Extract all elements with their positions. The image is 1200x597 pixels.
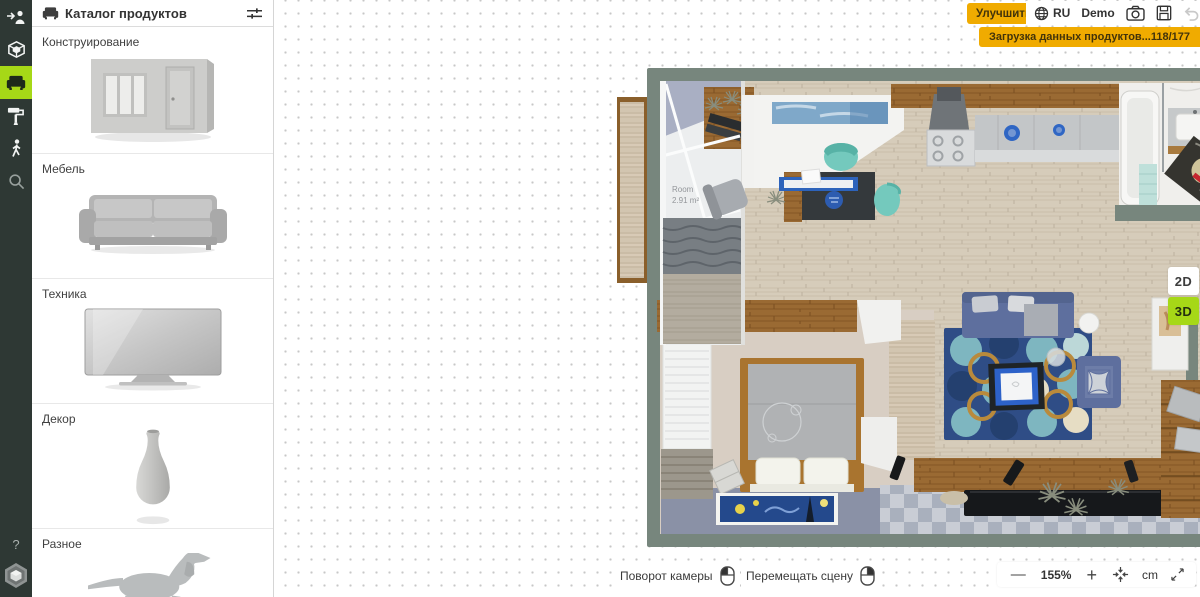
planner-app: Room 2.91 m² [0,0,1200,597]
rail-item-walk-person[interactable] [0,132,32,165]
product-image-dog[interactable] [32,553,273,597]
sofa-icon [42,6,59,20]
language-switcher[interactable]: RU [1034,6,1070,21]
view-3d-button[interactable]: 3D [1168,297,1199,325]
loggia: Room 2.91 m² [660,81,755,345]
left-icon-rail: ? [0,0,32,597]
language-label: RU [1053,6,1070,20]
fit-view-icon[interactable] [1112,566,1129,583]
section-label: Разное [32,529,273,553]
zoom-level: 155% [1041,568,1072,582]
zoom-in-button[interactable]: + [1084,566,1099,584]
undo-icon[interactable] [1183,6,1200,21]
catalog-section-construction[interactable]: Конструирование [32,27,273,154]
section-label: Мебель [32,154,273,178]
move-scene-hint: Перемещать сцену [741,564,880,588]
room-label: Room [672,185,694,194]
unit-selector[interactable]: cm [1142,568,1158,582]
section-label: Техника [32,279,273,303]
rail-item-room-3d[interactable] [0,33,32,66]
scene-canvas[interactable]: Room 2.91 m² [274,0,1200,597]
rail-item-invite-person[interactable] [0,0,32,33]
view-2d-button[interactable]: 2D [1168,267,1199,295]
demo-label: Demo [1081,6,1114,20]
rail-item-paint-roller[interactable] [0,99,32,132]
catalog-sidebar: Каталог продуктов Конструирование [32,0,274,597]
rail-item-search[interactable] [0,165,32,198]
product-image-tv[interactable] [32,303,273,395]
product-image-wall[interactable] [32,51,273,149]
section-label: Конструирование [32,27,273,51]
move-scene-label: Перемещать сцену [746,569,853,583]
fullscreen-icon[interactable] [1171,568,1184,581]
catalog-section-misc[interactable]: Разное [32,529,273,597]
catalog-section-decor[interactable]: Декор [32,404,273,529]
catalog-title: Каталог продуктов [65,6,187,21]
rotate-camera-label: Поворот камеры [620,569,713,583]
filter-sliders-icon[interactable] [246,6,263,21]
rail-item-furniture-catalog[interactable] [0,66,32,99]
section-label: Декор [32,404,273,428]
product-image-vase[interactable] [32,428,273,526]
mouse-left-button-icon [720,566,735,586]
catalog-header: Каталог продуктов [32,0,273,27]
product-image-sofa[interactable] [32,178,273,270]
help-button[interactable]: ? [12,537,19,552]
catalog-section-furniture[interactable]: Мебель [32,154,273,279]
screenshot-camera-icon[interactable] [1126,5,1145,21]
zoom-controls: — 155% + cm [997,562,1196,587]
floorplan-3d-view[interactable]: Room 2.91 m² [610,60,1200,552]
catalog-section-appliances[interactable]: Техника [32,279,273,404]
app-logo-icon [3,562,29,589]
room-area-label: 2.91 m² [672,196,699,205]
zoom-out-button[interactable]: — [1009,567,1028,582]
demo-button[interactable]: Demo [1081,6,1114,20]
loading-notification: Загрузка данных продуктов...118/177 [979,27,1200,47]
top-toolbar: RU Demo [1026,1,1200,25]
save-floppy-icon[interactable] [1156,5,1172,21]
rotate-camera-hint: Поворот камеры [615,564,740,588]
globe-icon [1034,6,1049,21]
mouse-right-button-icon [860,566,875,586]
view-mode-toggle: 2D 3D [1168,267,1199,325]
bathroom [1119,83,1200,211]
